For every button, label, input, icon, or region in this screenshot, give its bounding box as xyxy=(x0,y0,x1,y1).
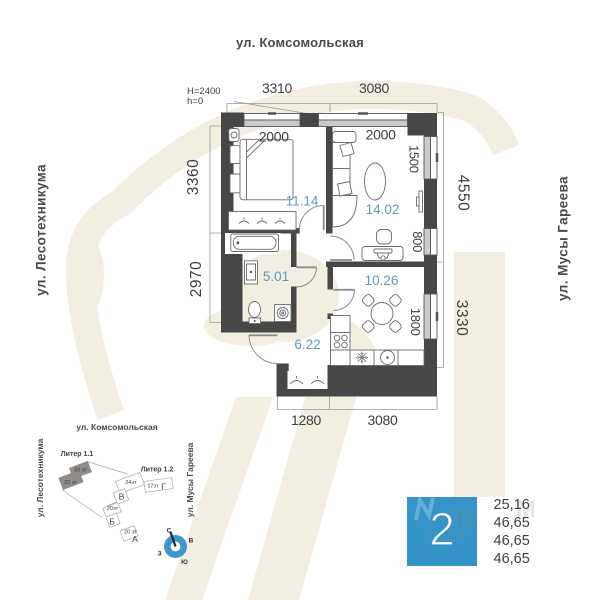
svg-text:Г: Г xyxy=(161,482,166,492)
svg-text:А: А xyxy=(132,534,138,544)
svg-text:46,65: 46,65 xyxy=(494,515,530,531)
svg-text:h=0: h=0 xyxy=(187,96,203,107)
svg-text:10.26: 10.26 xyxy=(365,273,399,288)
svg-text:Б: Б xyxy=(109,517,115,527)
svg-text:3310: 3310 xyxy=(262,80,292,96)
svg-text:32 эт: 32 эт xyxy=(64,480,77,486)
svg-text:Литер 1.2: Литер 1.2 xyxy=(141,467,174,474)
svg-text:ул. Комсомольская: ул. Комсомольская xyxy=(76,422,157,432)
svg-text:14.02: 14.02 xyxy=(366,202,400,217)
svg-text:В: В xyxy=(119,492,125,502)
svg-text:1800: 1800 xyxy=(408,308,423,336)
svg-text:11.14: 11.14 xyxy=(286,194,319,209)
svg-text:ул. Лесотехникума: ул. Лесотехникума xyxy=(35,438,45,517)
svg-text:800: 800 xyxy=(410,231,425,252)
svg-text:В: В xyxy=(189,538,194,545)
svg-text:5.01: 5.01 xyxy=(263,269,289,284)
svg-text:ул. Мусы Гареева: ул. Мусы Гареева xyxy=(185,442,195,517)
svg-text:30 эт: 30 эт xyxy=(74,468,87,474)
svg-text:6.22: 6.22 xyxy=(294,337,320,352)
svg-text:3330: 3330 xyxy=(453,300,470,336)
svg-text:ул. Комсомольская: ул. Комсомольская xyxy=(236,35,364,50)
svg-text:3080: 3080 xyxy=(359,80,389,96)
svg-text:2: 2 xyxy=(429,503,455,555)
svg-text:С: С xyxy=(167,528,172,535)
svg-text:З: З xyxy=(157,551,161,558)
svg-text:Литер 1.1: Литер 1.1 xyxy=(61,451,94,458)
svg-text:46,65: 46,65 xyxy=(494,533,530,549)
svg-text:2000: 2000 xyxy=(366,127,396,143)
svg-text:2000: 2000 xyxy=(259,129,289,145)
svg-text:3080: 3080 xyxy=(368,412,398,428)
svg-text:ул. Лесотехникума: ул. Лесотехникума xyxy=(34,164,49,296)
svg-text:46,65: 46,65 xyxy=(494,551,530,567)
svg-text:24эт: 24эт xyxy=(125,480,137,486)
svg-text:1500: 1500 xyxy=(406,145,421,173)
svg-text:20эт: 20эт xyxy=(107,506,119,512)
svg-text:1280: 1280 xyxy=(291,412,321,428)
svg-text:4550: 4550 xyxy=(454,175,471,211)
svg-text:ул. Мусы Гареева: ул. Мусы Гареева xyxy=(556,176,571,301)
svg-text:25,16: 25,16 xyxy=(494,497,530,513)
svg-text:Ю: Ю xyxy=(181,559,188,566)
svg-text:17эт: 17эт xyxy=(147,484,159,490)
svg-text:2970: 2970 xyxy=(188,261,205,297)
svg-text:3360: 3360 xyxy=(185,159,202,195)
